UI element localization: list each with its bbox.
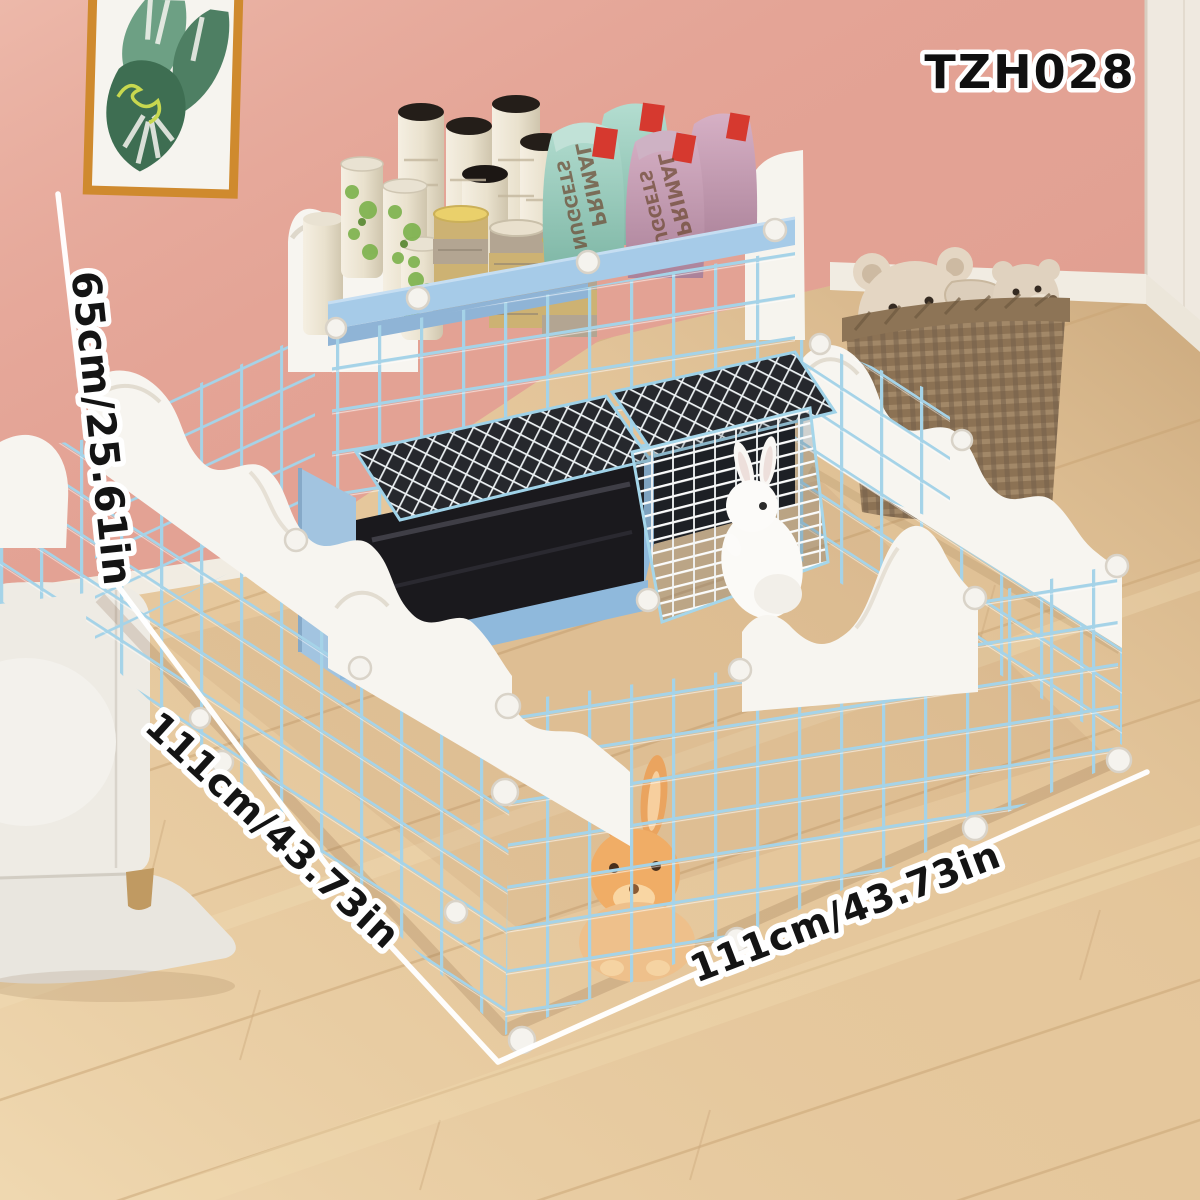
picture-frame bbox=[87, 0, 239, 194]
rabbit-eye bbox=[759, 502, 767, 510]
bag-tag bbox=[639, 103, 665, 134]
sofa-leg bbox=[126, 868, 154, 910]
product-photo: PRIMAL NUGGETS PRIMAL NUGGETS bbox=[0, 0, 1200, 1200]
product-code-label: TZH028 bbox=[924, 45, 1135, 99]
